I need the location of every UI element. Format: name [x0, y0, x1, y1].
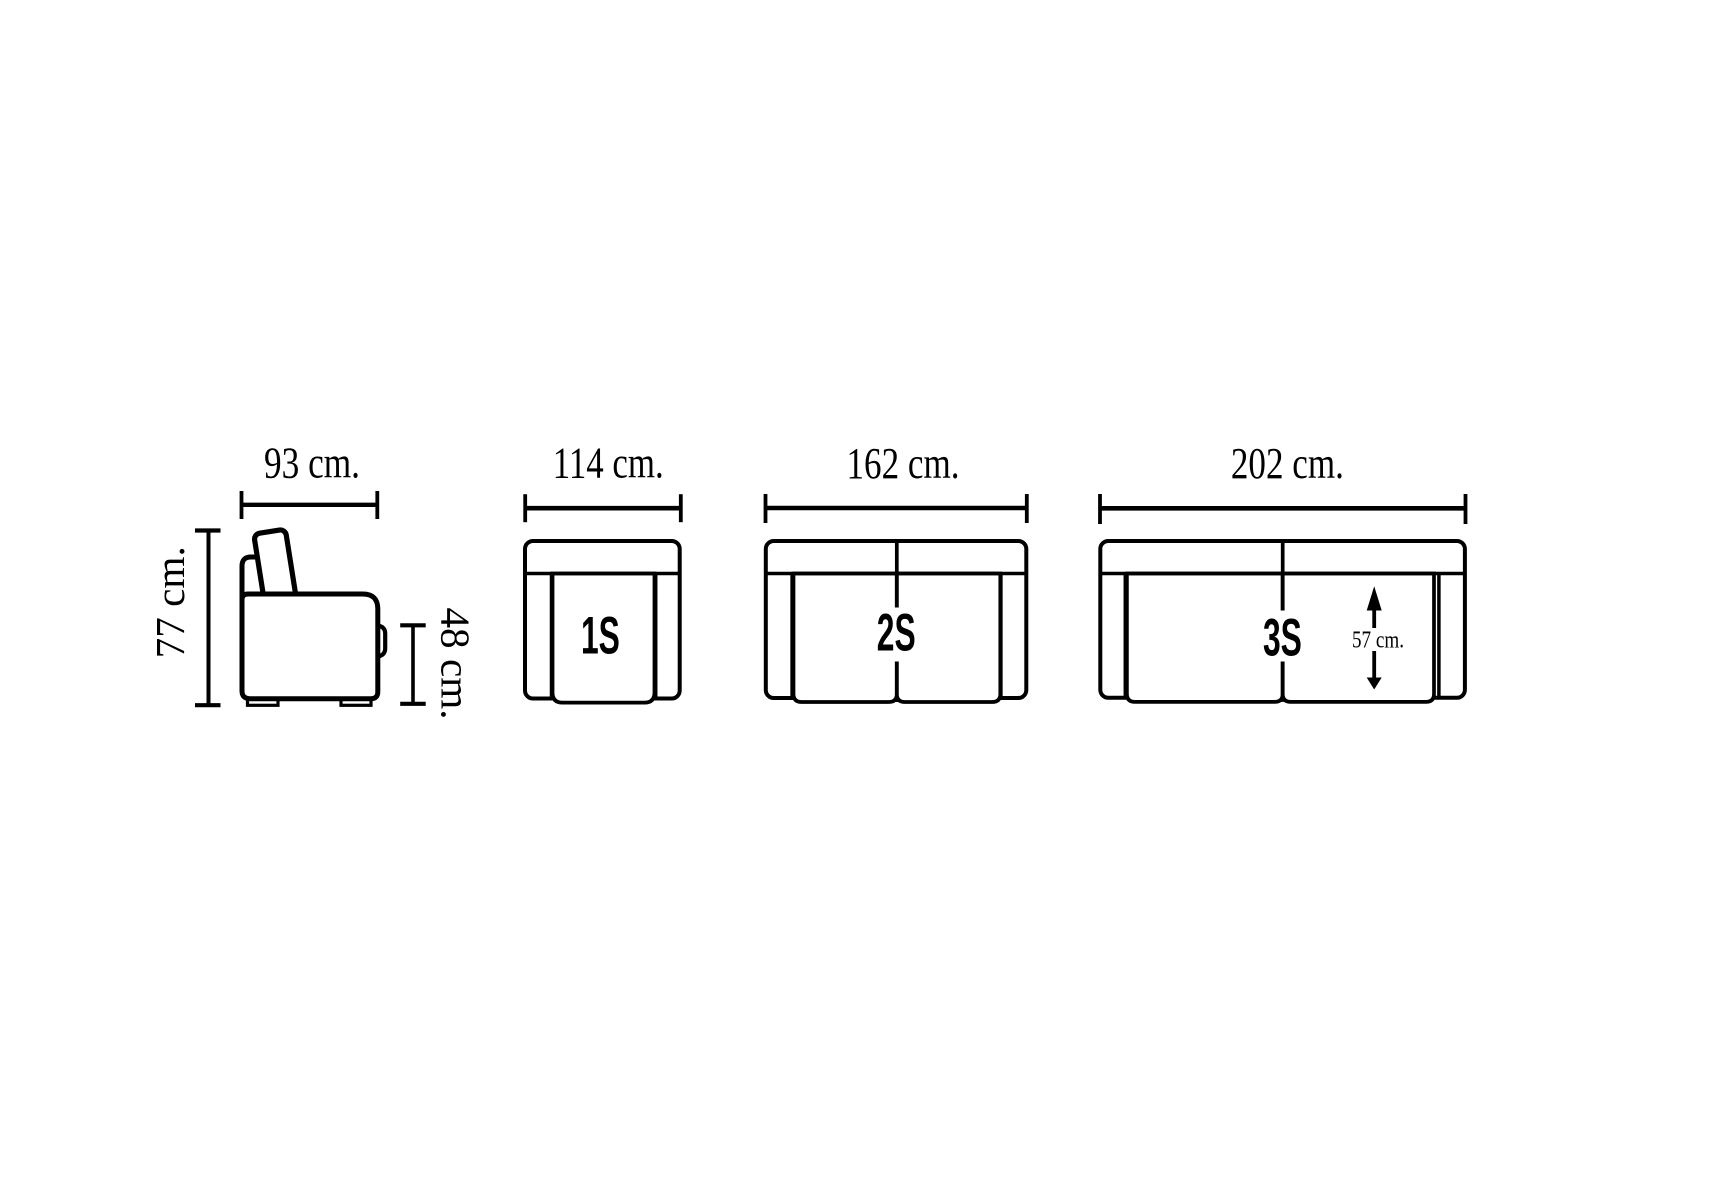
svg-text:3S: 3S [1263, 608, 1302, 667]
svg-text:93 cm.: 93 cm. [264, 439, 360, 488]
svg-text:114 cm.: 114 cm. [553, 439, 664, 488]
svg-text:77 cm.: 77 cm. [147, 546, 193, 658]
svg-text:162 cm.: 162 cm. [847, 439, 960, 488]
svg-text:1S: 1S [581, 606, 620, 665]
svg-text:202 cm.: 202 cm. [1231, 439, 1344, 488]
svg-text:57 cm.: 57 cm. [1352, 628, 1404, 654]
svg-text:2S: 2S [877, 603, 916, 662]
svg-text:48 cm.: 48 cm. [433, 607, 479, 719]
